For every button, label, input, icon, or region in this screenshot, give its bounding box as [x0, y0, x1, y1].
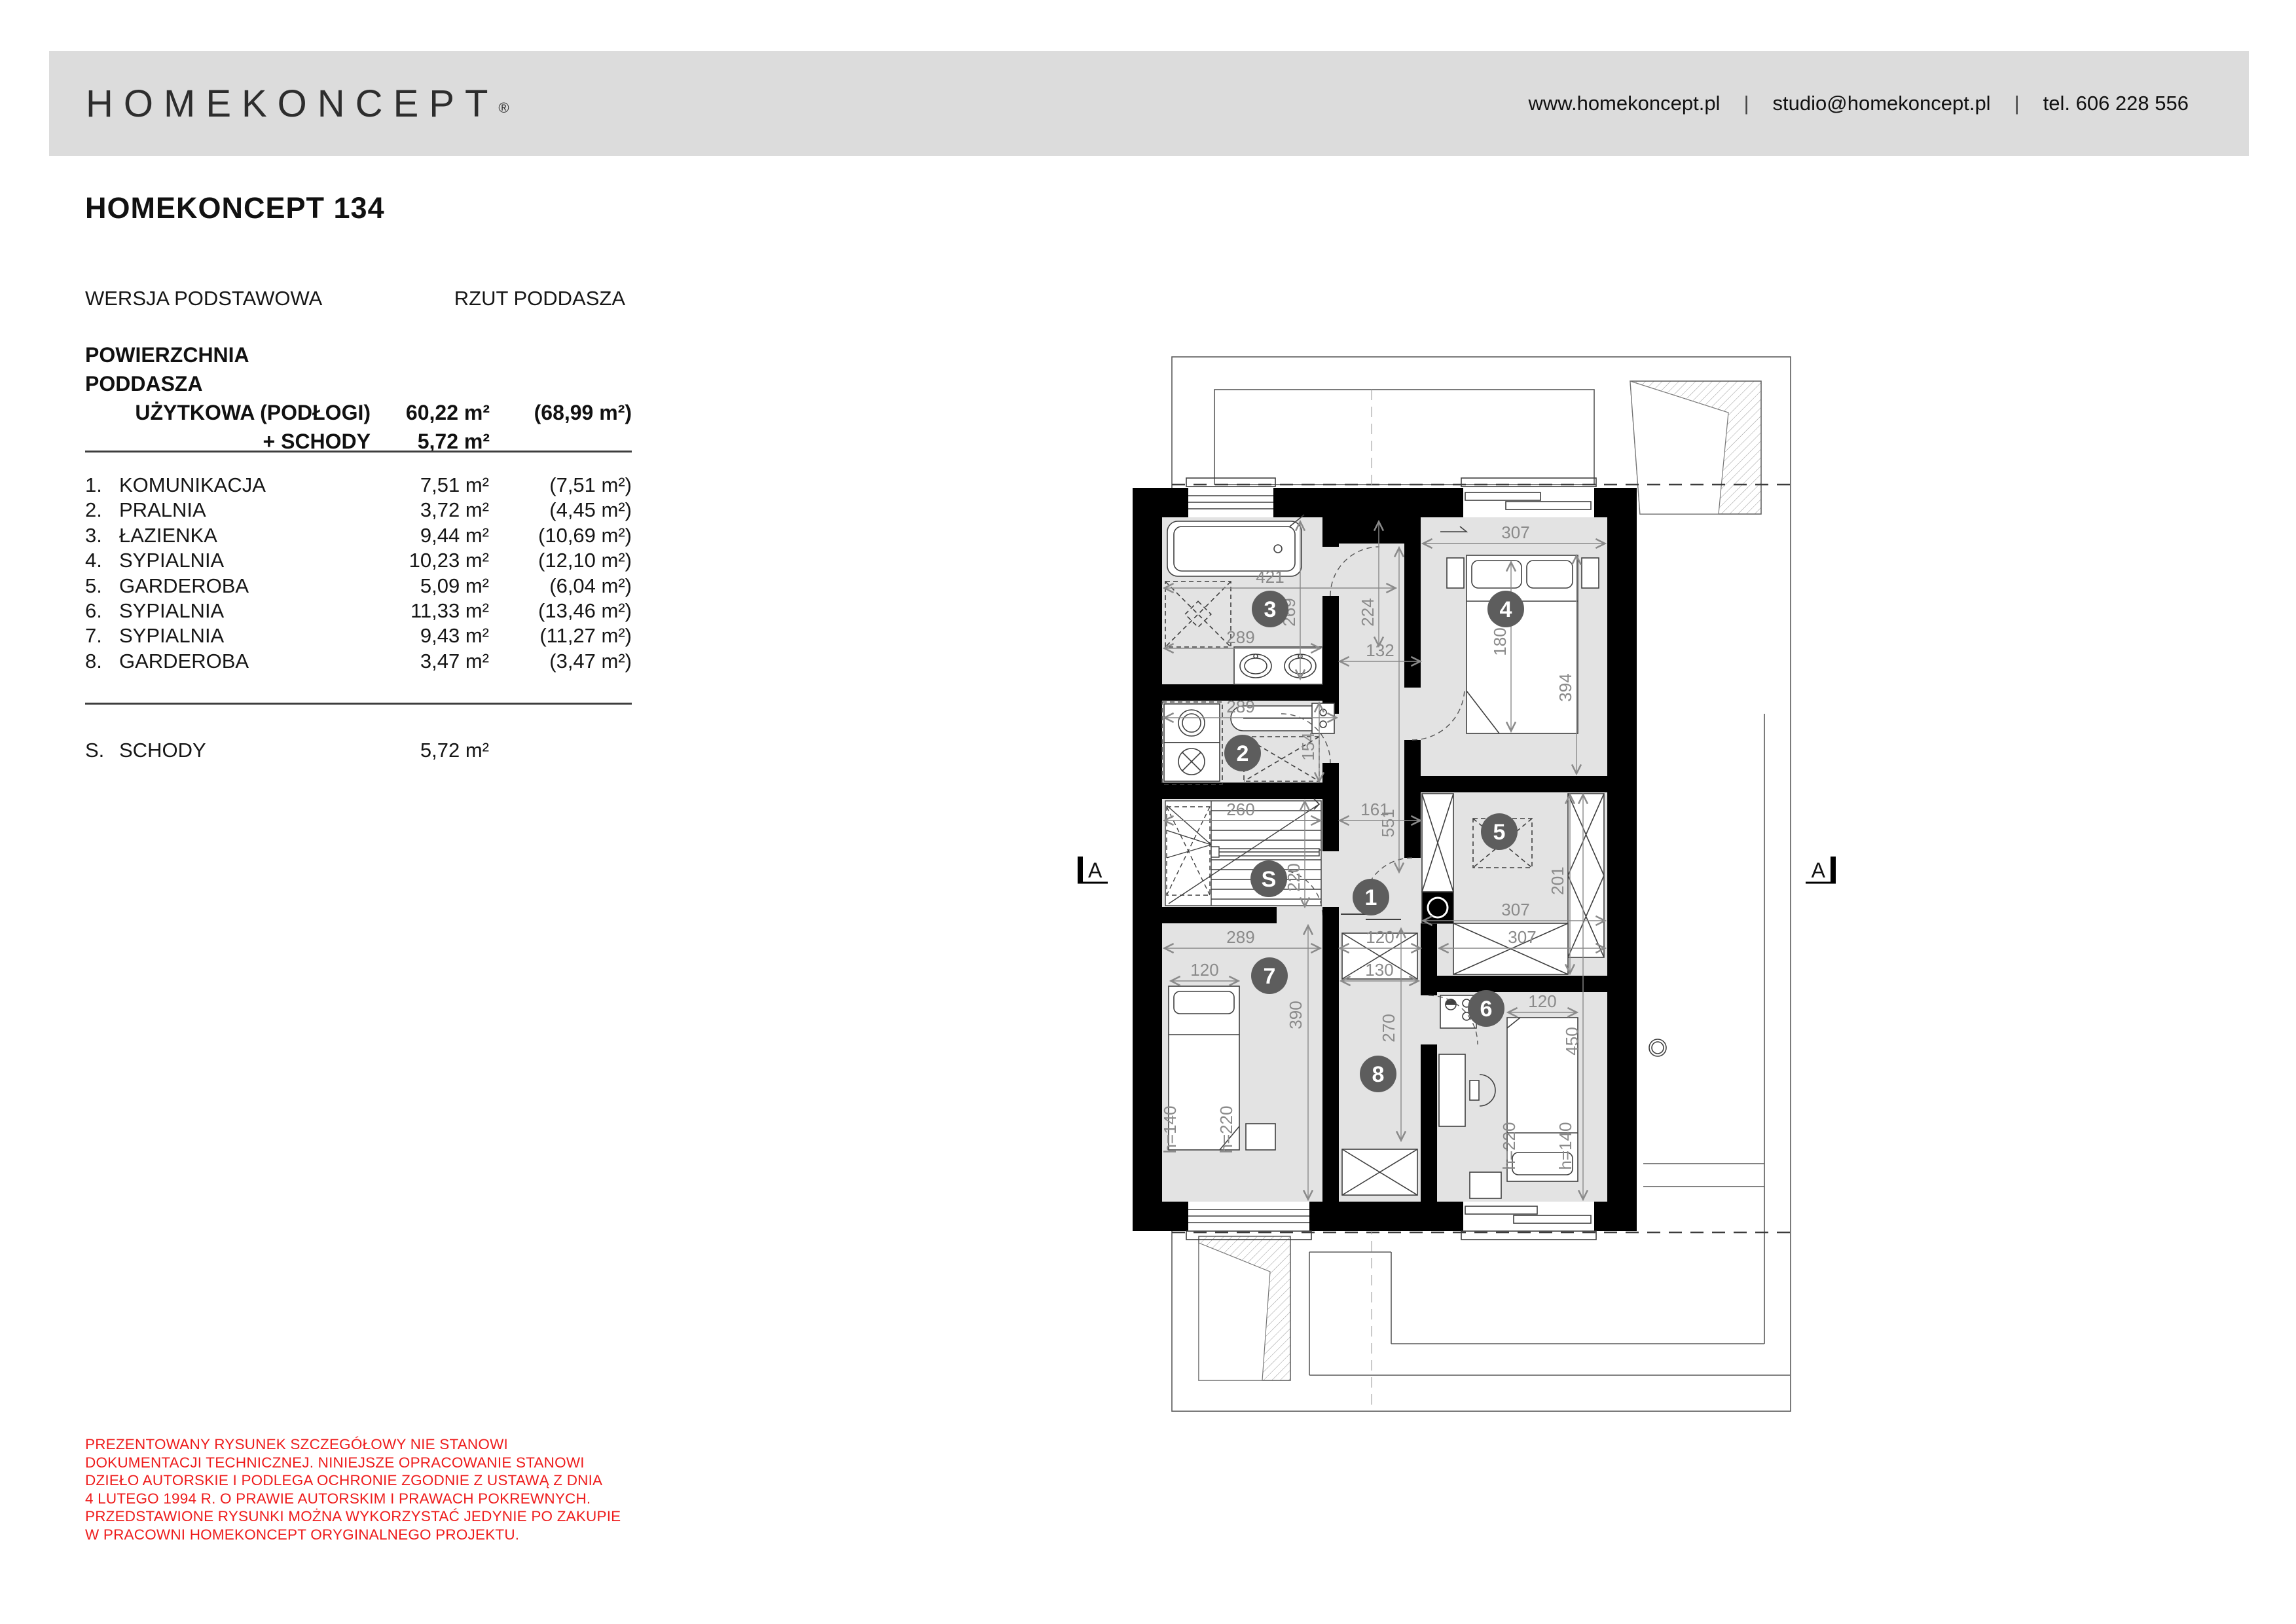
summary-heading: POWIERZCHNIA PODDASZA — [85, 341, 371, 398]
svg-text:7: 7 — [1264, 964, 1276, 989]
room-number: 8. — [85, 650, 119, 673]
room-number: 5. — [85, 574, 119, 598]
usable-total: (68,99 m²) — [490, 398, 632, 427]
room-name: PRALNIA — [119, 498, 381, 522]
header-contact: www.homekoncept.pl | studio@homekoncept.… — [1529, 92, 2189, 115]
room-area-total: (7,51 m²) — [489, 473, 632, 497]
area-summary: POWIERZCHNIA PODDASZA UŻYTKOWA (PODŁOGI)… — [85, 341, 632, 456]
table-row: 6.SYPIALNIA11,33 m²(13,46 m²) — [85, 599, 632, 624]
dim-289: 289 — [1226, 927, 1254, 947]
room-list: 1.KOMUNIKACJA7,51 m²(7,51 m²) 2.PRALNIA3… — [85, 473, 632, 674]
room-area: 9,44 m² — [381, 524, 489, 547]
plan-sheet-page: HOMEKONCEPT® www.homekoncept.pl | studio… — [0, 0, 2296, 1624]
disclaimer-line: 4 LUTEGO 1994 R. O PRAWIE AUTORSKIM I PR… — [85, 1490, 661, 1508]
registered-mark: ® — [498, 100, 509, 116]
svg-text:6: 6 — [1480, 997, 1493, 1022]
svg-text:5: 5 — [1493, 820, 1506, 845]
disclaimer-line: PREZENTOWANY RYSUNEK SZCZEGÓŁOWY NIE STA… — [85, 1435, 661, 1454]
stairs-area: 5,72 m² — [381, 739, 489, 762]
room-name: SYPIALNIA — [119, 599, 381, 623]
room-marker-8: 8 — [1360, 1056, 1396, 1092]
room-area: 3,72 m² — [381, 498, 489, 522]
view-label: RZUT PODDASZA — [454, 287, 625, 310]
room-area-total: (13,46 m²) — [489, 599, 632, 623]
skylight-top-right — [1630, 381, 1761, 514]
usable-label: UŻYTKOWA (PODŁOGI) — [85, 398, 371, 427]
dim-h220: h=220 — [1216, 1105, 1236, 1153]
window-bedroom6 — [1461, 1202, 1596, 1240]
room-marker-7: 7 — [1251, 957, 1288, 994]
table-row: 3.ŁAZIENKA9,44 m²(10,69 m²) — [85, 524, 632, 549]
room-area-total: (11,27 m²) — [489, 624, 632, 648]
stairs-name: SCHODY — [119, 739, 381, 762]
dim-551: 551 — [1378, 809, 1398, 837]
page-title: HOMEKONCEPT 134 — [85, 191, 385, 225]
dim-307: 307 — [1508, 927, 1536, 947]
dim-270: 270 — [1379, 1014, 1398, 1042]
stairs-number: S. — [85, 739, 119, 762]
contact-separator: | — [1740, 92, 1753, 115]
dim-180: 180 — [1490, 627, 1510, 655]
section-marker-left: A — [1078, 857, 1108, 883]
divider-bottom — [85, 703, 632, 705]
skylight-bottom-left — [1199, 1236, 1290, 1380]
phone-number: tel. 606 228 556 — [2043, 92, 2189, 115]
dim-h140: h=140 — [1160, 1105, 1180, 1153]
room-name: SYPIALNIA — [119, 624, 381, 648]
room-area: 9,43 m² — [381, 624, 489, 648]
wardrobe-5-left — [1422, 794, 1453, 923]
disclaimer-line: DOKUMENTACJI TECHNICZNEJ. NINIEJSZE OPRA… — [85, 1454, 661, 1472]
dim-289: 289 — [1226, 697, 1254, 716]
table-row: 2.PRALNIA3,72 m²(4,45 m²) — [85, 498, 632, 523]
dim-132: 132 — [1366, 640, 1394, 660]
room-number: 3. — [85, 524, 119, 547]
dim-120: 120 — [1528, 991, 1556, 1011]
svg-text:2: 2 — [1237, 741, 1249, 766]
table-row: 5.GARDEROBA5,09 m²(6,04 m²) — [85, 574, 632, 599]
room-area: 7,51 m² — [381, 473, 489, 497]
room-area: 11,33 m² — [381, 599, 489, 623]
room-marker-4: 4 — [1487, 591, 1524, 627]
dim-120: 120 — [1190, 960, 1218, 980]
room-marker-1: 1 — [1353, 879, 1389, 915]
dim-307: 307 — [1501, 523, 1529, 542]
room-number: 2. — [85, 498, 119, 522]
room-marker-6: 6 — [1468, 990, 1504, 1027]
room-marker-5: 5 — [1481, 813, 1518, 850]
contact-separator: | — [2011, 92, 2024, 115]
table-row: 4.SYPIALNIA10,23 m²(12,10 m²) — [85, 549, 632, 574]
wardrobe-5-right — [1568, 794, 1604, 957]
dim-260: 260 — [1226, 800, 1254, 819]
divider-top — [85, 451, 632, 452]
section-label: A — [1812, 858, 1826, 882]
room-area-total: (4,45 m²) — [489, 498, 632, 522]
room-marker-3: 3 — [1252, 591, 1288, 627]
room-area-total: (3,47 m²) — [489, 650, 632, 673]
dim-154: 154 — [1298, 732, 1318, 760]
email-link: studio@homekoncept.pl — [1773, 92, 1991, 115]
nightstand — [1447, 558, 1464, 588]
dim-130: 130 — [1365, 960, 1393, 980]
svg-text:4: 4 — [1500, 597, 1512, 622]
dim-394: 394 — [1556, 673, 1575, 701]
nightstand — [1246, 1124, 1275, 1150]
dim-289: 289 — [1226, 627, 1254, 647]
room-area: 5,09 m² — [381, 574, 489, 598]
room-area-total: (10,69 m²) — [489, 524, 632, 547]
room-name: GARDEROBA — [119, 650, 381, 673]
table-row: 1.KOMUNIKACJA7,51 m²(7,51 m²) — [85, 473, 632, 498]
washbasin-counter — [1234, 647, 1322, 684]
dim-h220: h=220 — [1499, 1122, 1519, 1170]
svg-text:3: 3 — [1264, 597, 1277, 622]
dim-h140: h=140 — [1556, 1122, 1575, 1170]
svg-text:8: 8 — [1372, 1062, 1385, 1087]
room-area: 10,23 m² — [381, 549, 489, 572]
floor-plan: 421 269 224 132 289 307 180 394 289 154 … — [1048, 321, 1899, 1473]
meta-row: WERSJA PODSTAWOWA RZUT PODDASZA — [85, 287, 625, 310]
stairs-row: S. SCHODY 5,72 m² — [85, 739, 632, 762]
window-bedroom7 — [1186, 1202, 1311, 1240]
room-name: SYPIALNIA — [119, 549, 381, 572]
section-label: A — [1088, 858, 1102, 882]
room-marker-2: 2 — [1224, 735, 1261, 771]
dim-450: 450 — [1562, 1027, 1582, 1055]
table-row: 8.GARDEROBA3,47 m²(3,47 m²) — [85, 650, 632, 674]
version-label: WERSJA PODSTAWOWA — [85, 287, 322, 310]
disclaimer-line: W PRACOWNI HOMEKONCEPT ORYGINALNEGO PROJ… — [85, 1526, 661, 1544]
room-name: GARDEROBA — [119, 574, 381, 598]
dim-224: 224 — [1358, 598, 1377, 626]
washer-dryer — [1162, 702, 1222, 784]
svg-text:1: 1 — [1365, 885, 1377, 910]
room-area-total: (12,10 m²) — [489, 549, 632, 572]
room-area-total: (6,04 m²) — [489, 574, 632, 598]
brand-logo: HOMEKONCEPT® — [86, 82, 509, 126]
disclaimer-line: PRZEDSTAWIONE RYSUNKI MOŻNA WYKORZYSTAĆ … — [85, 1507, 661, 1526]
room-number: 4. — [85, 549, 119, 572]
nightstand — [1470, 1172, 1501, 1198]
roof-vent-circle — [1649, 1039, 1666, 1056]
room-number: 6. — [85, 599, 119, 623]
brand-logo-text: HOMEKONCEPT — [86, 83, 498, 125]
room-number: 1. — [85, 473, 119, 497]
table-row: 7.SYPIALNIA9,43 m²(11,27 m²) — [85, 624, 632, 649]
room-name: KOMUNIKACJA — [119, 473, 381, 497]
room-number: 7. — [85, 624, 119, 648]
header-bar: HOMEKONCEPT® www.homekoncept.pl | studio… — [49, 51, 2249, 156]
room-area: 3,47 m² — [381, 650, 489, 673]
usable-value: 60,22 m² — [371, 398, 490, 427]
room-marker-s: S — [1250, 860, 1287, 897]
nightstand — [1582, 558, 1599, 588]
disclaimer-line: DZIEŁO AUTORSKIE I PODLEGA OCHRONIE ZGOD… — [85, 1471, 661, 1490]
dim-120: 120 — [1366, 927, 1394, 947]
section-marker-right: A — [1806, 857, 1836, 883]
dim-307: 307 — [1501, 900, 1529, 919]
bed-double — [1467, 555, 1578, 733]
room-name: ŁAZIENKA — [119, 524, 381, 547]
dim-201: 201 — [1548, 866, 1567, 895]
copyright-disclaimer: PREZENTOWANY RYSUNEK SZCZEGÓŁOWY NIE STA… — [85, 1435, 661, 1543]
floor-plan-drawing: 421 269 224 132 289 307 180 394 289 154 … — [1048, 321, 1899, 1473]
dim-390: 390 — [1286, 1001, 1305, 1029]
dim-421: 421 — [1256, 567, 1284, 587]
svg-text:S: S — [1262, 867, 1277, 892]
website-link: www.homekoncept.pl — [1529, 92, 1721, 115]
